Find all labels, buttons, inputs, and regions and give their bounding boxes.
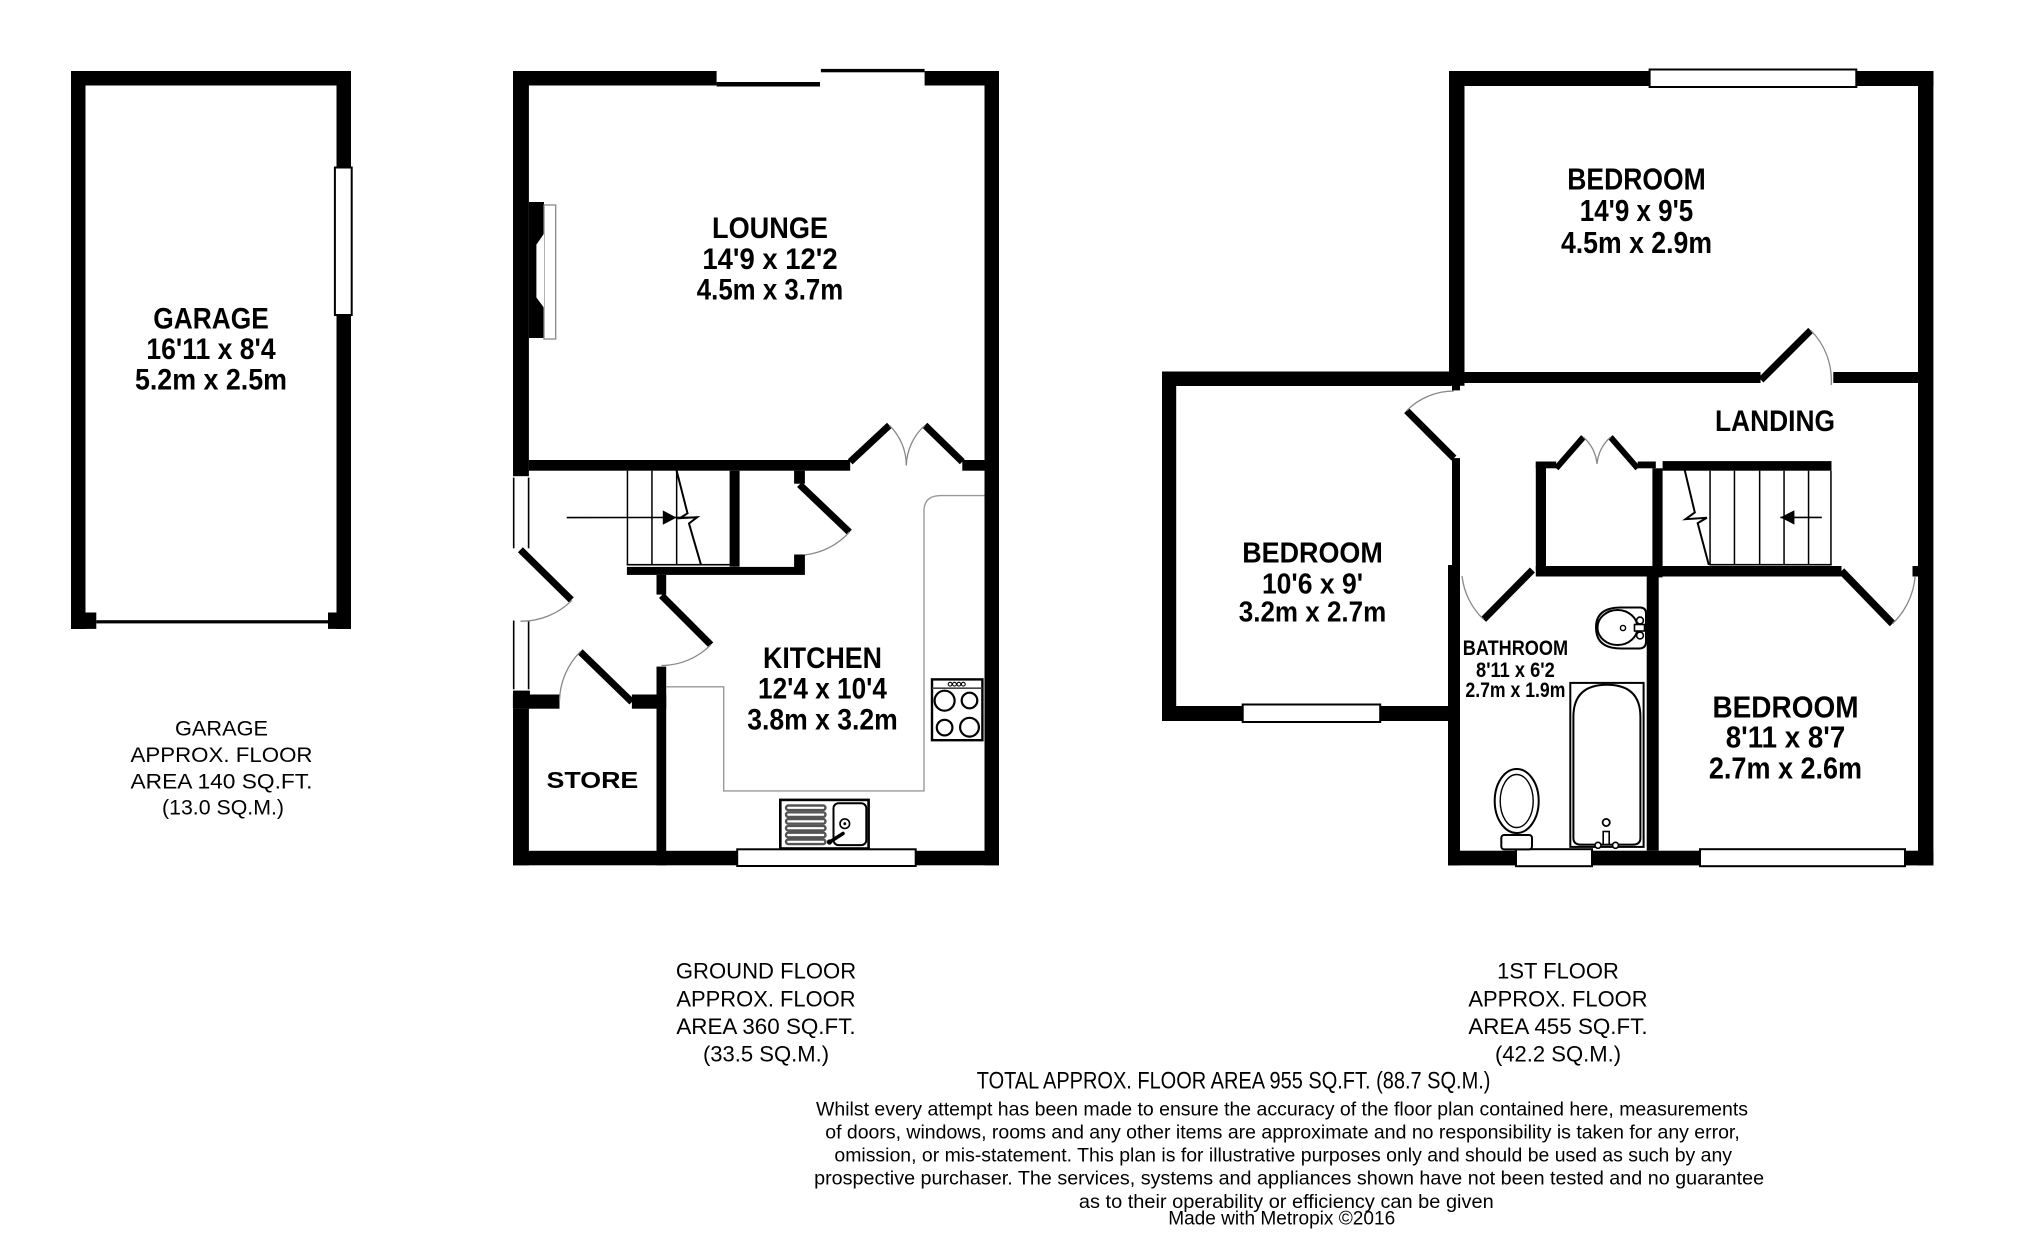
svg-text:(42.2 SQ.M.): (42.2 SQ.M.) xyxy=(1495,1042,1621,1067)
svg-text:3.2m x 2.7m: 3.2m x 2.7m xyxy=(1239,596,1387,628)
svg-text:16'11 x 8'4: 16'11 x 8'4 xyxy=(146,333,276,366)
svg-text:4.5m x 3.7m: 4.5m x 3.7m xyxy=(697,273,843,306)
svg-text:TOTAL APPROX. FLOOR AREA 955 S: TOTAL APPROX. FLOOR AREA 955 SQ.FT. (88.… xyxy=(977,1068,1491,1095)
svg-text:APPROX. FLOOR: APPROX. FLOOR xyxy=(676,987,855,1012)
svg-text:prospective purchaser. The ser: prospective purchaser. The services, sys… xyxy=(814,1168,1764,1190)
svg-text:APPROX. FLOOR: APPROX. FLOOR xyxy=(1468,987,1647,1012)
svg-text:(33.5 SQ.M.): (33.5 SQ.M.) xyxy=(703,1042,829,1067)
svg-text:GARAGE: GARAGE xyxy=(153,302,269,335)
svg-text:STORE: STORE xyxy=(547,767,639,793)
svg-text:of doors, windows, rooms and a: of doors, windows, rooms and any other i… xyxy=(825,1122,1740,1144)
svg-text:omission, or mis-statement. Th: omission, or mis-statement. This plan is… xyxy=(834,1145,1732,1167)
svg-text:BEDROOM: BEDROOM xyxy=(1567,162,1706,197)
svg-text:Whilst every attempt has been: Whilst every attempt has been made to en… xyxy=(816,1098,1748,1120)
svg-text:2.7m x 1.9m: 2.7m x 1.9m xyxy=(1465,679,1565,702)
svg-text:GROUND FLOOR: GROUND FLOOR xyxy=(676,958,856,983)
svg-text:AREA 140 SQ.FT.: AREA 140 SQ.FT. xyxy=(131,770,313,794)
svg-text:14'9 x 9'5: 14'9 x 9'5 xyxy=(1580,193,1693,228)
svg-text:LANDING: LANDING xyxy=(1715,405,1835,438)
svg-text:4.5m x 2.9m: 4.5m x 2.9m xyxy=(1561,225,1712,260)
svg-text:12'4 x 10'4: 12'4 x 10'4 xyxy=(758,672,887,705)
svg-text:3.8m x 3.2m: 3.8m x 3.2m xyxy=(747,704,898,737)
svg-text:APPROX. FLOOR: APPROX. FLOOR xyxy=(131,743,313,767)
svg-text:AREA 455 SQ.FT.: AREA 455 SQ.FT. xyxy=(1468,1014,1647,1039)
svg-text:14'9 x 12'2: 14'9 x 12'2 xyxy=(702,243,837,276)
svg-text:LOUNGE: LOUNGE xyxy=(712,212,828,245)
svg-text:BEDROOM: BEDROOM xyxy=(1242,538,1383,570)
svg-text:5.2m x 2.5m: 5.2m x 2.5m xyxy=(135,364,287,397)
svg-text:BATHROOM: BATHROOM xyxy=(1463,637,1568,660)
svg-text:GARAGE: GARAGE xyxy=(175,717,268,741)
svg-text:2.7m x 2.6m: 2.7m x 2.6m xyxy=(1709,750,1862,785)
svg-text:(13.0 SQ.M.): (13.0 SQ.M.) xyxy=(162,796,284,820)
svg-text:KITCHEN: KITCHEN xyxy=(763,642,882,675)
svg-text:AREA 360 SQ.FT.: AREA 360 SQ.FT. xyxy=(676,1014,855,1039)
svg-text:Made with Metropix ©2016: Made with Metropix ©2016 xyxy=(1168,1207,1395,1229)
svg-text:1ST FLOOR: 1ST FLOOR xyxy=(1497,958,1619,983)
